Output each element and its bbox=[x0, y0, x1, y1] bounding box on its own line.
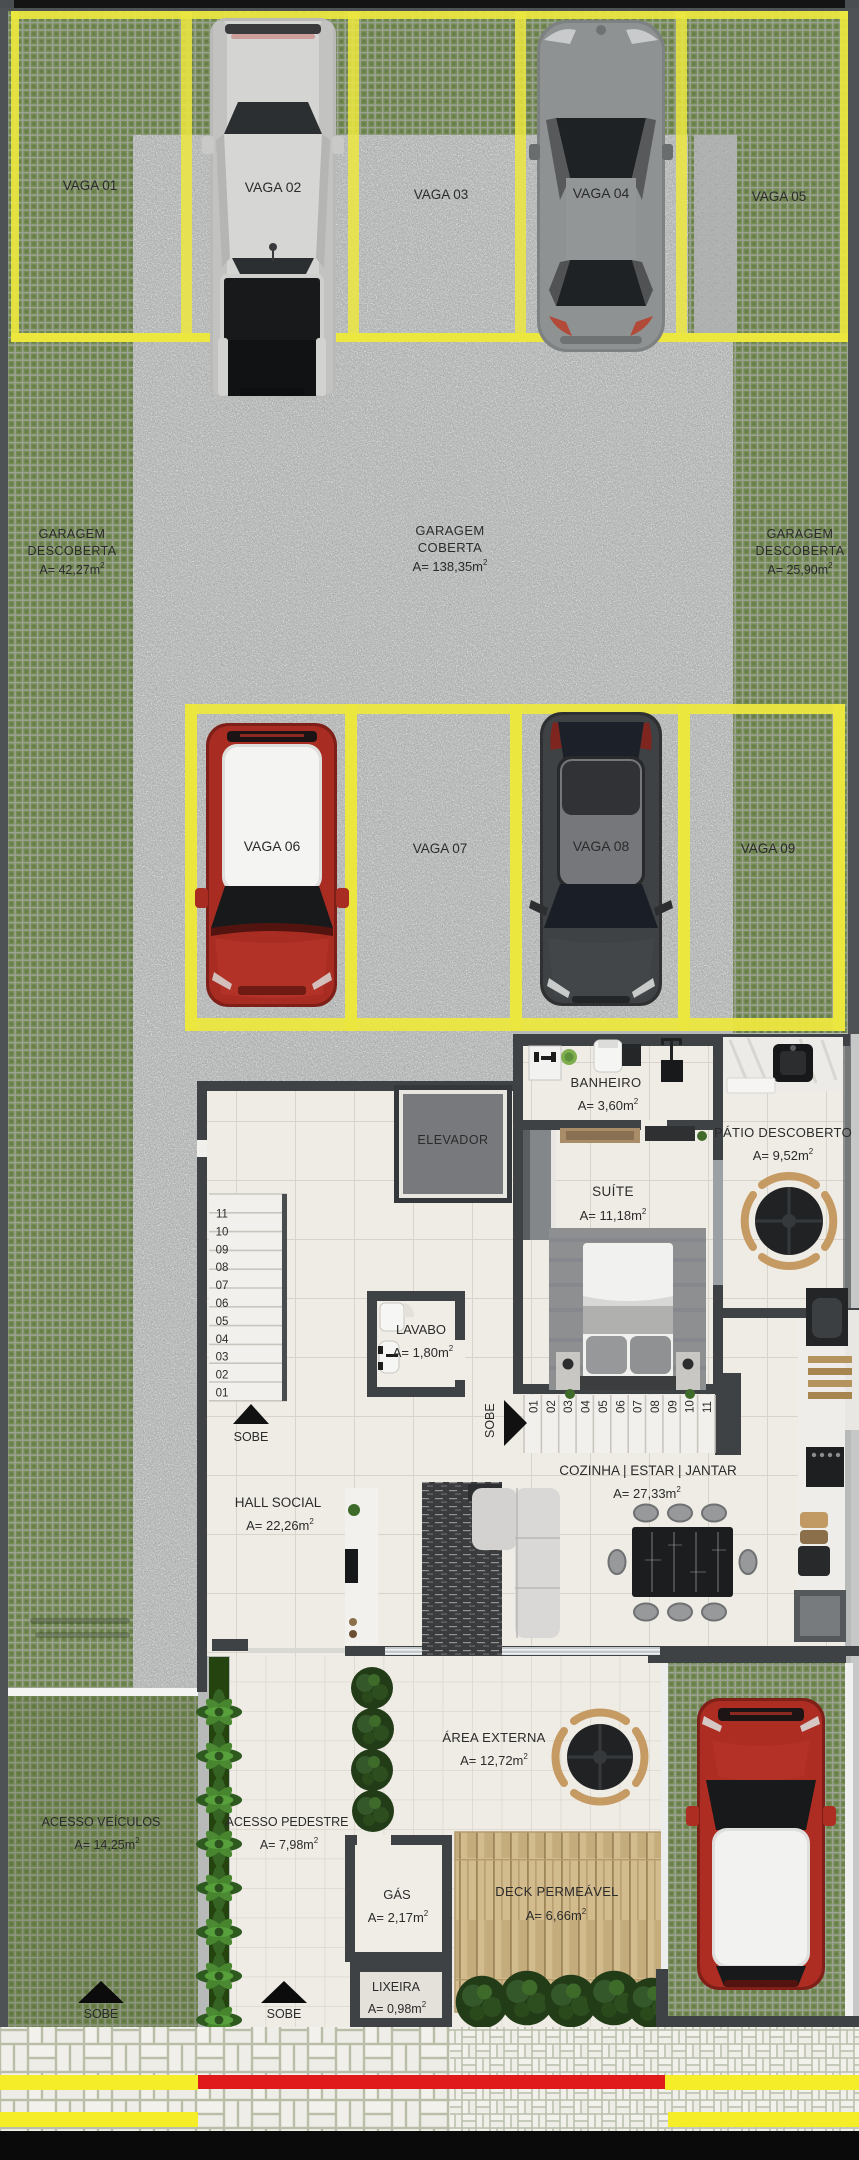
svg-text:06: 06 bbox=[615, 1400, 627, 1413]
svg-text:VAGA 08: VAGA 08 bbox=[573, 838, 630, 854]
svg-text:06: 06 bbox=[216, 1298, 229, 1310]
svg-text:04: 04 bbox=[216, 1334, 229, 1346]
svg-text:05: 05 bbox=[598, 1400, 610, 1413]
svg-text:GÁS: GÁS bbox=[383, 1887, 411, 1902]
svg-text:VAGA 05: VAGA 05 bbox=[752, 189, 807, 204]
svg-text:09: 09 bbox=[216, 1244, 229, 1256]
svg-text:DESCOBERTA: DESCOBERTA bbox=[28, 544, 117, 558]
svg-text:05: 05 bbox=[216, 1316, 229, 1328]
svg-text:ÁREA EXTERNA: ÁREA EXTERNA bbox=[442, 1730, 545, 1745]
svg-text:VAGA 04: VAGA 04 bbox=[573, 185, 630, 201]
svg-text:A= 14,25m2: A= 14,25m2 bbox=[74, 1836, 140, 1852]
svg-text:SUÍTE: SUÍTE bbox=[592, 1184, 634, 1199]
svg-text:PÁTIO DESCOBERTO: PÁTIO DESCOBERTO bbox=[714, 1125, 852, 1140]
svg-text:ELEVADOR: ELEVADOR bbox=[417, 1133, 488, 1147]
svg-text:HALL SOCIAL: HALL SOCIAL bbox=[235, 1495, 322, 1510]
svg-text:A= 6,66m2: A= 6,66m2 bbox=[526, 1907, 587, 1923]
svg-text:A= 138,35m2: A= 138,35m2 bbox=[413, 558, 488, 574]
svg-text:VAGA 07: VAGA 07 bbox=[413, 841, 468, 856]
svg-text:VAGA 03: VAGA 03 bbox=[414, 187, 469, 202]
svg-text:01: 01 bbox=[529, 1400, 541, 1413]
svg-text:A= 27,33m2: A= 27,33m2 bbox=[613, 1485, 681, 1501]
svg-text:11: 11 bbox=[702, 1401, 714, 1413]
svg-text:A= 42,27m2: A= 42,27m2 bbox=[39, 561, 105, 577]
svg-text:07: 07 bbox=[216, 1280, 229, 1292]
svg-text:VAGA 01: VAGA 01 bbox=[63, 178, 118, 193]
svg-text:A= 1,80m2: A= 1,80m2 bbox=[393, 1344, 454, 1360]
svg-text:VAGA 09: VAGA 09 bbox=[741, 841, 796, 856]
svg-text:ACESSO PEDESTRE: ACESSO PEDESTRE bbox=[226, 1815, 349, 1829]
svg-text:A= 9,52m2: A= 9,52m2 bbox=[753, 1147, 814, 1163]
svg-text:DECK PERMEÁVEL: DECK PERMEÁVEL bbox=[495, 1884, 618, 1899]
svg-text:SOBE: SOBE bbox=[234, 1430, 269, 1444]
svg-text:02: 02 bbox=[216, 1370, 229, 1382]
svg-text:SOBE: SOBE bbox=[483, 1403, 497, 1438]
svg-text:A= 0,98m2: A= 0,98m2 bbox=[368, 2000, 427, 2016]
svg-text:A= 11,18m2: A= 11,18m2 bbox=[580, 1207, 647, 1223]
svg-text:GARAGEM: GARAGEM bbox=[39, 527, 106, 541]
svg-text:LAVABO: LAVABO bbox=[396, 1322, 446, 1337]
svg-text:GARAGEM: GARAGEM bbox=[767, 527, 834, 541]
svg-text:01: 01 bbox=[216, 1388, 229, 1400]
svg-text:A= 2,17m2: A= 2,17m2 bbox=[368, 1909, 429, 1925]
svg-text:11: 11 bbox=[216, 1209, 228, 1221]
svg-text:VAGA 02: VAGA 02 bbox=[245, 179, 302, 195]
svg-text:03: 03 bbox=[216, 1352, 229, 1364]
svg-text:SOBE: SOBE bbox=[267, 2007, 302, 2021]
svg-text:DESCOBERTA: DESCOBERTA bbox=[756, 544, 845, 558]
svg-text:A= 12,72m2: A= 12,72m2 bbox=[460, 1752, 528, 1768]
svg-text:GARAGEM: GARAGEM bbox=[415, 523, 484, 538]
svg-text:04: 04 bbox=[581, 1400, 593, 1413]
svg-text:A= 3,60m2: A= 3,60m2 bbox=[578, 1097, 639, 1113]
svg-text:COZINHA | ESTAR | JANTAR: COZINHA | ESTAR | JANTAR bbox=[559, 1463, 737, 1478]
svg-text:A= 7,98m2: A= 7,98m2 bbox=[260, 1836, 319, 1852]
svg-text:07: 07 bbox=[633, 1400, 645, 1413]
svg-text:A= 25,90m2: A= 25,90m2 bbox=[767, 561, 833, 577]
svg-text:02: 02 bbox=[546, 1400, 558, 1413]
svg-text:COBERTA: COBERTA bbox=[418, 540, 482, 555]
svg-text:VAGA 06: VAGA 06 bbox=[244, 838, 301, 854]
svg-text:03: 03 bbox=[563, 1400, 575, 1413]
svg-text:08: 08 bbox=[216, 1262, 229, 1274]
svg-text:BANHEIRO: BANHEIRO bbox=[570, 1075, 641, 1090]
svg-text:08: 08 bbox=[650, 1400, 662, 1413]
svg-text:09: 09 bbox=[667, 1400, 679, 1413]
svg-text:10: 10 bbox=[685, 1400, 697, 1413]
svg-text:ACESSO VEÍCULOS: ACESSO VEÍCULOS bbox=[42, 1814, 161, 1829]
svg-text:10: 10 bbox=[216, 1226, 229, 1238]
svg-text:SOBE: SOBE bbox=[84, 2007, 119, 2021]
svg-text:A= 22,26m2: A= 22,26m2 bbox=[246, 1517, 314, 1533]
svg-text:LIXEIRA: LIXEIRA bbox=[372, 1980, 421, 1994]
